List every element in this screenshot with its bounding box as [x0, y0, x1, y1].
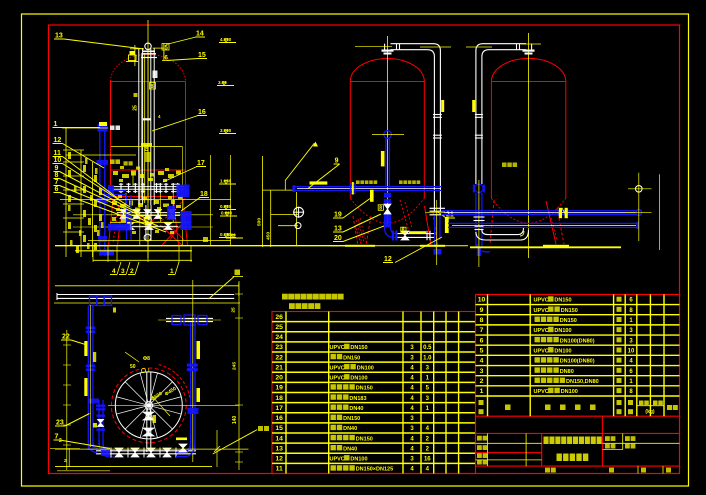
- svg-text:DN40: DN40: [349, 406, 363, 412]
- svg-text:DN40: DN40: [343, 426, 357, 432]
- svg-text:UPVC: UPVC: [534, 298, 549, 304]
- svg-text:DN150: DN150: [343, 355, 360, 361]
- svg-text:0.5: 0.5: [423, 345, 432, 351]
- svg-text:10: 10: [478, 297, 486, 304]
- svg-text:2: 2: [64, 458, 67, 464]
- svg-text:14: 14: [196, 31, 204, 38]
- svg-text:16: 16: [198, 109, 206, 116]
- svg-text:DN80: DN80: [560, 369, 574, 375]
- svg-text:1: 1: [170, 268, 174, 275]
- svg-text:DN100: DN100: [350, 457, 367, 463]
- svg-text:4: 4: [112, 268, 116, 275]
- svg-text:7: 7: [480, 327, 484, 334]
- svg-text:DN183: DN183: [349, 396, 366, 402]
- svg-text:13: 13: [334, 226, 342, 233]
- svg-text:2: 2: [59, 438, 62, 444]
- svg-text:DN100: DN100: [561, 389, 578, 395]
- svg-text:24: 24: [275, 334, 283, 341]
- svg-text:18: 18: [275, 395, 283, 402]
- svg-text:6: 6: [480, 337, 484, 344]
- svg-text:UPVC: UPVC: [534, 308, 549, 314]
- svg-text:22: 22: [275, 354, 283, 361]
- svg-text:0.800: 0.800: [221, 211, 233, 216]
- svg-text:0.950: 0.950: [220, 204, 232, 209]
- svg-text:DN100: DN100: [357, 365, 374, 371]
- svg-text:19: 19: [275, 385, 283, 392]
- svg-text:DN100(DN80): DN100(DN80): [560, 359, 595, 365]
- svg-text:15: 15: [275, 425, 283, 432]
- svg-text:UPVC: UPVC: [534, 389, 549, 395]
- svg-text:DN150: DN150: [560, 318, 577, 324]
- svg-text:22: 22: [62, 334, 70, 341]
- svg-text:4.650: 4.650: [220, 37, 232, 42]
- svg-text:3.000: 3.000: [220, 128, 232, 133]
- svg-text:DN40: DN40: [343, 446, 357, 452]
- svg-text:DN150,DN80: DN150,DN80: [566, 379, 599, 385]
- svg-text:7: 7: [55, 434, 59, 441]
- svg-text:15: 15: [198, 52, 206, 59]
- svg-text:500: 500: [257, 218, 263, 226]
- svg-text:25: 25: [133, 105, 139, 111]
- svg-text:21: 21: [275, 364, 283, 371]
- svg-text:26: 26: [275, 314, 283, 321]
- svg-text:4: 4: [480, 358, 484, 365]
- svg-text:8: 8: [55, 172, 59, 179]
- svg-text:9: 9: [480, 307, 484, 314]
- svg-text:10: 10: [628, 348, 635, 354]
- svg-text:DN150: DN150: [350, 345, 367, 351]
- svg-text:DN150×DN125: DN150×DN125: [356, 467, 393, 473]
- svg-text:7: 7: [55, 179, 59, 186]
- svg-text:1: 1: [480, 388, 484, 395]
- svg-text:3: 3: [121, 268, 125, 275]
- svg-text:3: 3: [480, 368, 484, 375]
- svg-text:UPVC: UPVC: [330, 345, 345, 351]
- svg-text:8: 8: [402, 228, 405, 234]
- svg-text:UPVC: UPVC: [330, 376, 345, 382]
- svg-text:450: 450: [266, 232, 272, 240]
- svg-text:23: 23: [56, 420, 64, 427]
- svg-text:DN150: DN150: [554, 298, 571, 304]
- svg-text:DN150: DN150: [356, 386, 373, 392]
- svg-text:2: 2: [130, 268, 134, 275]
- svg-text:11: 11: [54, 150, 62, 157]
- svg-text:25: 25: [275, 324, 283, 331]
- svg-text:1.050: 1.050: [220, 179, 232, 184]
- svg-text:DN150: DN150: [356, 436, 373, 442]
- svg-text:16: 16: [424, 457, 431, 463]
- svg-text:5: 5: [480, 347, 484, 354]
- svg-text:20: 20: [275, 375, 283, 382]
- svg-text:9: 9: [335, 158, 339, 165]
- svg-text:20: 20: [334, 235, 342, 242]
- svg-text:DN100: DN100: [554, 348, 571, 354]
- svg-text:14: 14: [275, 435, 283, 442]
- svg-text:Φ8: Φ8: [143, 356, 150, 362]
- svg-text:(kg): (kg): [645, 409, 655, 415]
- svg-text:13: 13: [55, 33, 63, 40]
- svg-text:140: 140: [232, 416, 238, 425]
- svg-text:1: 1: [54, 121, 58, 128]
- svg-text:UPVC: UPVC: [330, 365, 345, 371]
- svg-text:UPVC: UPVC: [534, 328, 549, 334]
- svg-text:13: 13: [275, 445, 283, 452]
- svg-text:17: 17: [197, 160, 205, 167]
- svg-text:DN150: DN150: [561, 308, 578, 314]
- svg-text:18: 18: [200, 191, 208, 198]
- svg-text:12: 12: [384, 256, 392, 263]
- svg-text:1.0: 1.0: [423, 355, 432, 361]
- svg-text:UPVC: UPVC: [534, 348, 549, 354]
- svg-text:11: 11: [276, 466, 283, 473]
- svg-text:DN150: DN150: [343, 416, 360, 422]
- svg-text:10: 10: [54, 157, 62, 164]
- svg-text:DN100(DN80): DN100(DN80): [560, 338, 595, 344]
- svg-text:9: 9: [55, 165, 59, 172]
- svg-text:DN100: DN100: [554, 328, 571, 334]
- svg-text:12: 12: [275, 456, 283, 463]
- svg-text:12: 12: [54, 137, 62, 144]
- svg-text:8: 8: [480, 317, 484, 324]
- svg-text:UPVC: UPVC: [330, 457, 345, 463]
- svg-text:245: 245: [232, 362, 238, 370]
- svg-text:2: 2: [480, 378, 484, 385]
- svg-text:17: 17: [275, 405, 283, 412]
- svg-text:25: 25: [231, 307, 237, 313]
- svg-text:DN100: DN100: [350, 376, 367, 382]
- svg-text:6: 6: [55, 186, 59, 193]
- svg-text:8: 8: [379, 206, 382, 212]
- svg-text:23: 23: [275, 344, 283, 351]
- svg-text:19: 19: [334, 212, 342, 219]
- svg-text:50: 50: [130, 364, 136, 370]
- svg-text:16: 16: [275, 415, 283, 422]
